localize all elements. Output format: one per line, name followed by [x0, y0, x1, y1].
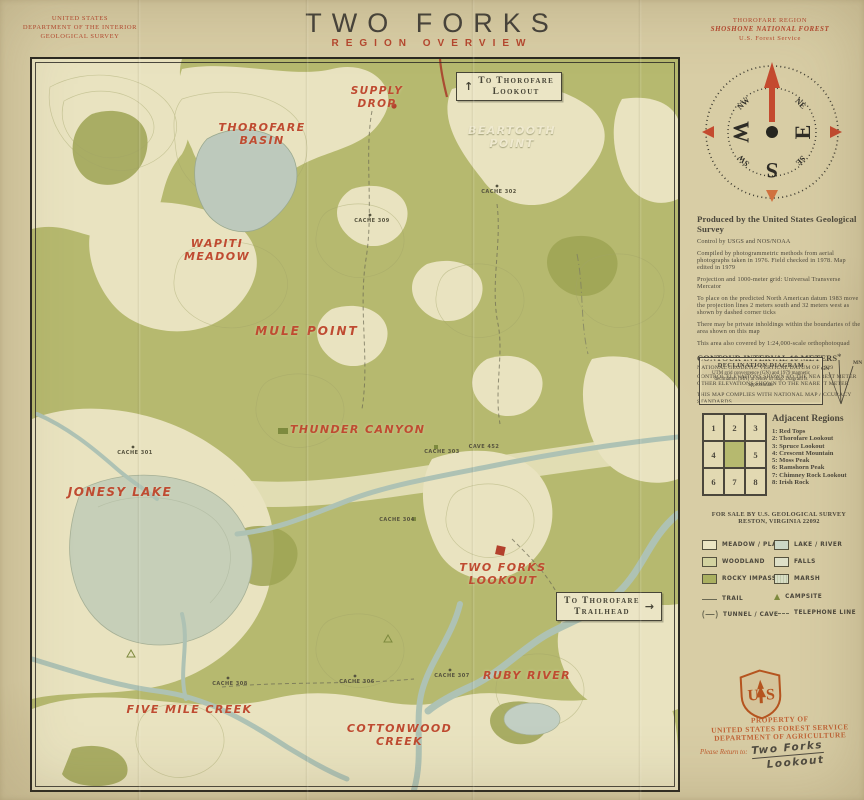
declination-body: UTM grid convergence (GN) and 1979 magne…: [705, 371, 817, 388]
compass-nw: NW: [735, 95, 751, 111]
to-thorofare-lookout-text: To Thorofare Lookout: [478, 76, 554, 97]
survey-paragraph: There may be private inholdings within t…: [697, 321, 861, 335]
for-sale-note: FOR SALE BY U.S. GEOLOGICAL SURVEY RESTO…: [695, 511, 863, 525]
label-thunder-canyon: THUNDER CANYON: [290, 423, 460, 436]
label-beartooth-point: BEARTOOTH POINT: [452, 124, 572, 150]
shield-letter-s: S: [766, 686, 776, 703]
adjacent-region-item: 7: Chimney Rock Lookout: [772, 472, 860, 479]
legend-lake-river: LAKE / RIVER: [774, 540, 842, 550]
label-thorofare-basin: THOROFARE BASIN: [207, 121, 317, 147]
adjacent-region-item: 4: Crescent Mountain: [772, 450, 860, 457]
legend-tunnel-cave: TUNNEL / CAVE: [702, 610, 778, 619]
two-forks-map-sheet: UNITED STATES DEPARTMENT OF THE INTERIOR…: [0, 0, 864, 800]
property-stamp: PROPERTY OF UNITED STATES FOREST SERVICE…: [698, 714, 863, 744]
mn-label: MN: [853, 360, 862, 366]
legend-meadow: MEADOW / PLAIN: [702, 540, 785, 550]
label-five-mile-creek: FIVE MILE CREEK: [117, 703, 262, 716]
label-wapiti-meadow: WAPITI MEADOW: [162, 237, 272, 263]
to-thorofare-trailhead-box: To Thorofare Trailhead →: [556, 592, 662, 621]
legend-rocky-impasse: ROCKY IMPASSE: [702, 574, 781, 584]
label-ruby-river: RUBY RIVER: [467, 669, 587, 682]
declination-diagram: * MN GN: [820, 352, 862, 410]
label-jonesy-lake: JONESY LAKE: [60, 486, 180, 499]
survey-paragraph: This area also covered by 1:24,000-scale…: [697, 340, 861, 347]
label-cache-306: CACHE 306: [327, 679, 387, 685]
thunder-canyon-marker: [278, 428, 288, 434]
survey-paragraph: Projection and 1000-meter grid: Universa…: [697, 276, 861, 290]
survey-control: Control by USGS and NOS/NOAA: [697, 238, 861, 245]
north-arrow: [764, 62, 780, 122]
woodland-swatch: [702, 557, 717, 567]
label-two-forks-lookout: TWO FORKS LOOKOUT: [447, 561, 559, 587]
two-forks-lookout-marker: [495, 545, 506, 556]
label-cache-309: CACHE 309: [342, 218, 402, 224]
to-thorofare-trailhead-text: To Thorofare Trailhead: [564, 596, 640, 617]
legend-trail: TRAIL: [702, 596, 743, 602]
adjacent-region-item: 2: Thorofare Lookout: [772, 435, 860, 442]
agency-line: SHOSHONE NATIONAL FOREST: [690, 25, 850, 34]
tunnel-cave-icon: [702, 610, 718, 619]
adjacent-region-item: 3: Spruce Lookout: [772, 443, 860, 450]
label-cache-301: CACHE 301: [105, 450, 165, 456]
gn-label: GN: [821, 366, 829, 372]
survey-paragraph: To place on the predicted North American…: [697, 295, 861, 316]
adjacent-regions-list: Adjacent Regions 1: Red Tops 2: Thorofar…: [772, 414, 860, 486]
grid-cell: 1: [703, 414, 724, 441]
legend-woodland: WOODLAND: [702, 557, 765, 567]
label-mule-point: MULE POINT: [237, 325, 377, 338]
trail-line-icon: [702, 599, 717, 600]
map-panel: SUPPLY DROP THOROFARE BASIN BEARTOOTH PO…: [30, 57, 680, 792]
agency-line: U.S. Forest Service: [690, 34, 850, 43]
adjacent-region-item: 1: Red Tops: [772, 428, 860, 435]
label-cache-304: CACHE 304: [367, 517, 427, 523]
agency-line: THOROFARE REGION: [690, 16, 850, 25]
label-cottonwood-creek: COTTONWOOD CREEK: [337, 722, 462, 748]
compass-se: SE: [794, 154, 807, 167]
grid-cell-current-region: [724, 441, 745, 468]
handwritten-return-value: Two Forks Lookout: [751, 739, 825, 772]
label-cache-308: CACHE 308: [200, 681, 260, 687]
right-arrow-icon: →: [645, 600, 654, 613]
compass-ne: NE: [793, 96, 807, 110]
grid-cell: 6: [703, 468, 724, 495]
lake-river-swatch: [774, 540, 789, 550]
compass-rose: W E S NW NE SW SE: [698, 58, 846, 206]
adjacent-region-item: 8: Irish Rock: [772, 479, 860, 486]
grid-cell: 4: [703, 441, 724, 468]
declination-box: DECLINATION DIAGRAM UTM grid convergence…: [699, 357, 823, 405]
survey-heading: Produced by the United States Geological…: [697, 214, 861, 234]
up-arrow-icon: ↑: [464, 80, 473, 93]
adjacent-regions-grid: 1 2 3 4 5 6 7 8: [702, 413, 767, 496]
compass-sw: SW: [736, 153, 751, 168]
legend-campsite: ▲ CAMPSITE: [774, 593, 822, 601]
grid-cell: 7: [724, 468, 745, 495]
label-supply-drop: SUPPLY DROP: [332, 85, 422, 111]
legend-marsh: MARSH: [774, 574, 820, 584]
grid-cell: 5: [745, 441, 766, 468]
compass-e: E: [790, 125, 815, 140]
adjacent-region-item: 6: Ramshorn Peak: [772, 464, 860, 471]
adjacent-regions-heading: Adjacent Regions: [772, 414, 860, 424]
label-cave-452: CAVE 452: [454, 444, 514, 450]
legend-telephone-line: TELEPHONE LINE: [774, 610, 856, 616]
compass-s: S: [766, 158, 778, 183]
rocky-impasse-swatch: [702, 574, 717, 584]
compass-w: W: [729, 121, 754, 143]
telephone-line-icon: [774, 613, 789, 614]
declination-title: DECLINATION DIAGRAM: [705, 362, 817, 369]
marsh-swatch: [774, 574, 789, 584]
adjacent-region-item: 5: Moss Peak: [772, 457, 860, 464]
usfs-shield-icon: U S: [737, 667, 786, 721]
legend-falls: FALLS: [774, 557, 816, 567]
meadow-swatch: [702, 540, 717, 550]
grid-cell: 2: [724, 414, 745, 441]
forest-agency-block: THOROFARE REGION SHOSHONE NATIONAL FORES…: [690, 16, 850, 43]
falls-swatch: [774, 557, 789, 567]
survey-paragraph: Compiled by photogrammetric methods from…: [697, 250, 861, 271]
campsite-icon: ▲: [774, 593, 780, 601]
true-north-star: *: [837, 352, 842, 362]
grid-cell: 8: [745, 468, 766, 495]
label-cache-302: CACHE 302: [469, 189, 529, 195]
grid-cell: 3: [745, 414, 766, 441]
to-thorofare-lookout-box: ↑ To Thorofare Lookout: [456, 72, 562, 101]
